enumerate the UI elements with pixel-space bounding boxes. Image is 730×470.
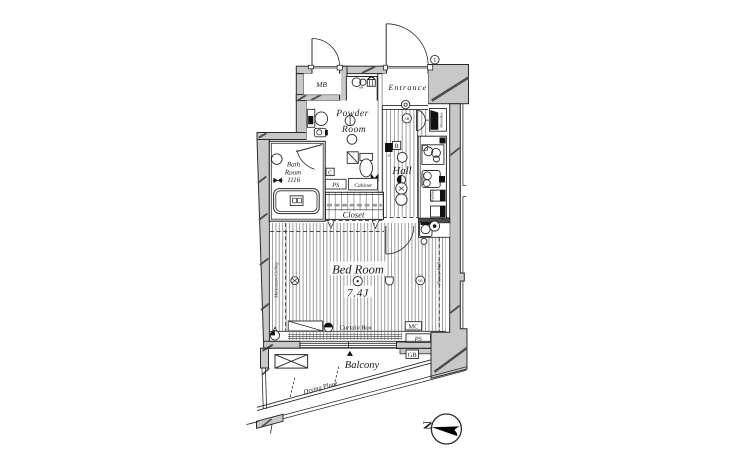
svg-text:Cabinet: Cabinet bbox=[354, 183, 372, 189]
svg-text:GB: GB bbox=[408, 352, 418, 359]
svg-text:Bath: Bath bbox=[287, 161, 301, 169]
svg-text:PS: PS bbox=[414, 336, 423, 343]
svg-text:a: a bbox=[388, 153, 390, 158]
svg-text:Closet: Closet bbox=[343, 210, 365, 220]
svg-text:SB: SB bbox=[404, 116, 409, 121]
svg-text:N: N bbox=[420, 421, 434, 430]
svg-text:Room: Room bbox=[341, 125, 366, 135]
svg-text:Flower Wall: Flower Wall bbox=[437, 261, 442, 285]
svg-text:ShoesBox: ShoesBox bbox=[439, 112, 444, 128]
svg-text:Kitchen: Kitchen bbox=[422, 173, 426, 185]
svg-text:1116: 1116 bbox=[287, 176, 300, 184]
svg-text:Maisonette-Ceiling: Maisonette-Ceiling bbox=[274, 262, 279, 299]
svg-text:C: C bbox=[328, 170, 332, 176]
svg-text:Bed Room: Bed Room bbox=[332, 263, 384, 277]
svg-text:PS: PS bbox=[331, 182, 340, 189]
svg-text:SB: SB bbox=[418, 279, 423, 283]
svg-text:Entrance: Entrance bbox=[387, 83, 427, 92]
svg-text:Balcony: Balcony bbox=[345, 360, 380, 371]
svg-text:MB: MB bbox=[315, 80, 327, 89]
svg-text:R: R bbox=[395, 143, 400, 150]
svg-text:MC: MC bbox=[408, 324, 418, 331]
svg-text:1: 1 bbox=[433, 57, 436, 64]
svg-text:Washing: Washing bbox=[431, 190, 435, 203]
svg-text:Curtain Box: Curtain Box bbox=[340, 325, 372, 332]
svg-text:7.4J: 7.4J bbox=[347, 288, 369, 300]
